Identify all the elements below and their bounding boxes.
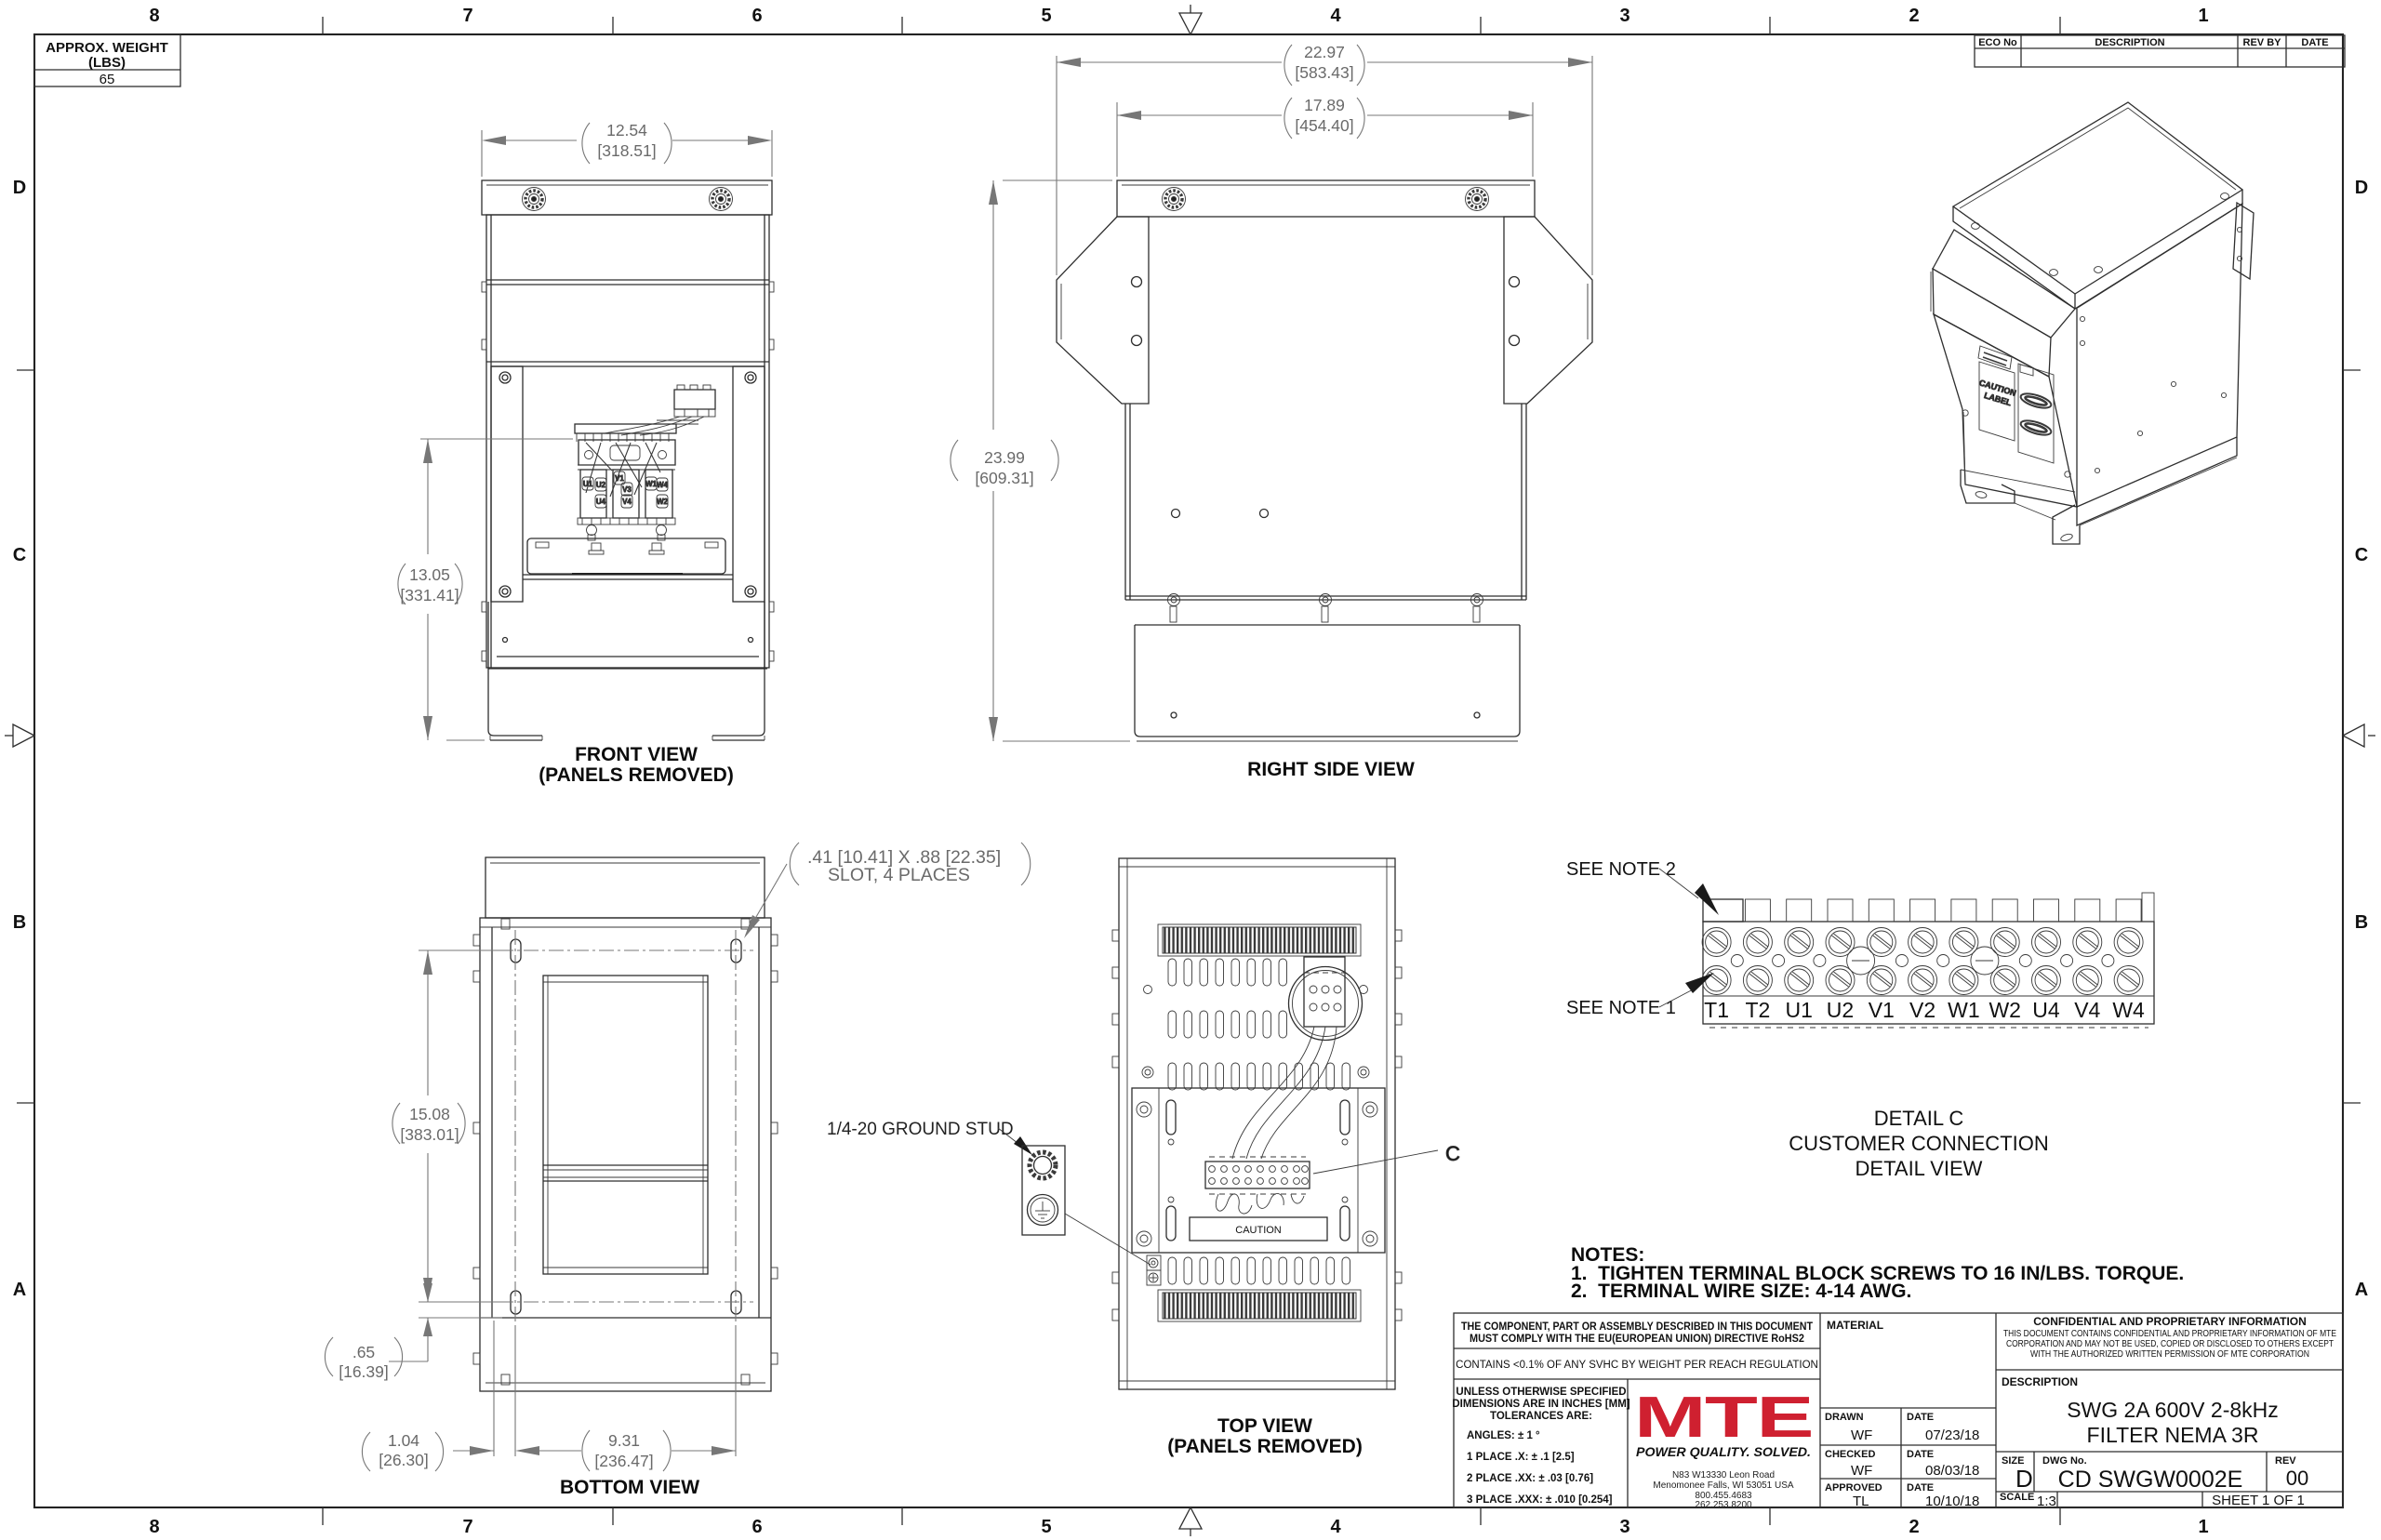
- svg-text:D: D: [2015, 1465, 2033, 1493]
- svg-text:A: A: [2355, 1280, 2368, 1300]
- svg-text:1/4-20 GROUND STUD: 1/4-20 GROUND STUD: [827, 1120, 1014, 1139]
- svg-text:DIMENSIONS ARE IN INCHES [MM]: DIMENSIONS ARE IN INCHES [MM]: [1452, 1399, 1629, 1410]
- svg-text:C: C: [2355, 545, 2368, 565]
- svg-text:2: 2: [1909, 1517, 1919, 1537]
- svg-text:TL: TL: [1853, 1494, 1869, 1509]
- svg-text:[236.47]: [236.47]: [594, 1452, 653, 1470]
- svg-text:CONFIDENTIAL AND PROPRIETARY I: CONFIDENTIAL AND PROPRIETARY INFORMATION: [2033, 1315, 2307, 1328]
- svg-text:(LBS): (LBS): [88, 55, 126, 71]
- svg-text:13.05: 13.05: [409, 565, 450, 584]
- svg-text:SLOT, 4 PLACES: SLOT, 4 PLACES: [828, 865, 970, 885]
- svg-text:B: B: [2355, 912, 2368, 933]
- svg-text:W1: W1: [1948, 998, 1980, 1022]
- svg-text:MUST COMPLY WITH THE EU(EUROPE: MUST COMPLY WITH THE EU(EUROPEAN UNION) …: [1470, 1332, 1804, 1345]
- svg-text:W2: W2: [657, 498, 669, 506]
- svg-text:8: 8: [149, 6, 159, 26]
- svg-text:WF: WF: [1851, 1463, 1872, 1479]
- svg-text:U1: U1: [583, 480, 593, 488]
- svg-text:2 PLACE .XX: ± .03 [0.76]: 2 PLACE .XX: ± .03 [0.76]: [1467, 1473, 1593, 1484]
- svg-text:CAUTION: CAUTION: [1235, 1225, 1282, 1236]
- svg-text:APPROX. WEIGHT: APPROX. WEIGHT: [46, 40, 168, 56]
- svg-text:65: 65: [100, 72, 115, 87]
- svg-text:W2: W2: [1989, 998, 2021, 1022]
- svg-text:T1: T1: [1704, 998, 1729, 1022]
- svg-text:V2: V2: [1909, 998, 1935, 1022]
- svg-text:6: 6: [752, 6, 762, 26]
- svg-text:22.97: 22.97: [1304, 43, 1345, 61]
- svg-text:08/03/18: 08/03/18: [1925, 1463, 1979, 1479]
- svg-text:SCALE: SCALE: [2000, 1492, 2034, 1503]
- svg-text:15.08: 15.08: [409, 1105, 450, 1123]
- svg-text:V1: V1: [1869, 998, 1895, 1022]
- svg-text:1: 1: [2198, 1517, 2208, 1537]
- svg-text:DWG No.: DWG No.: [2042, 1455, 2087, 1467]
- svg-text:MTE: MTE: [1634, 1386, 1813, 1450]
- svg-text:00: 00: [2286, 1467, 2308, 1490]
- svg-text:10/10/18: 10/10/18: [1925, 1494, 1979, 1509]
- svg-text:DATE: DATE: [2301, 37, 2328, 48]
- svg-text:DATE: DATE: [1907, 1482, 1934, 1494]
- svg-text:3: 3: [1619, 6, 1629, 26]
- svg-text:N83 W13330 Leon Road: N83 W13330 Leon Road: [1672, 1470, 1775, 1480]
- svg-text:ANGLES: ± 1 °: ANGLES: ± 1 °: [1467, 1430, 1540, 1441]
- svg-text:D: D: [2355, 178, 2368, 198]
- svg-text:W4: W4: [657, 481, 669, 489]
- svg-text:CONTAINS <0.1% OF ANY SVHC BY: CONTAINS <0.1% OF ANY SVHC BY WEIGHT PER…: [1456, 1360, 1818, 1371]
- svg-text:THE COMPONENT, PART OR ASSEMBL: THE COMPONENT, PART OR ASSEMBLY DESCRIBE…: [1461, 1320, 1814, 1333]
- svg-text:T2: T2: [1745, 998, 1770, 1022]
- svg-text:FRONT VIEW: FRONT VIEW: [575, 744, 698, 765]
- svg-text:TOP VIEW: TOP VIEW: [1217, 1415, 1312, 1437]
- svg-text:[454.40]: [454.40]: [1295, 116, 1353, 135]
- svg-text:REV BY: REV BY: [2243, 37, 2282, 48]
- svg-text:CORPORATION AND MAY NOT BE USE: CORPORATION AND MAY NOT BE USED, COPIED …: [2006, 1339, 2334, 1349]
- svg-text:[26.30]: [26.30]: [379, 1451, 429, 1469]
- svg-text:APPROVED: APPROVED: [1825, 1482, 1882, 1494]
- svg-text:U1: U1: [1785, 998, 1812, 1022]
- svg-text:U4: U4: [2032, 998, 2060, 1022]
- svg-text:(PANELS REMOVED): (PANELS REMOVED): [1167, 1436, 1363, 1457]
- svg-text:DATE: DATE: [1907, 1412, 1934, 1423]
- svg-text:4: 4: [1330, 1517, 1341, 1537]
- svg-text:2. TERMINAL WIRE SIZE: 4-14 A: 2. TERMINAL WIRE SIZE: 4-14 AWG.: [1571, 1281, 1911, 1302]
- svg-text:SEE NOTE 1: SEE NOTE 1: [1566, 998, 1676, 1018]
- svg-text:DATE: DATE: [1907, 1449, 1934, 1460]
- svg-text:SEE NOTE 2: SEE NOTE 2: [1566, 859, 1676, 880]
- svg-text:8: 8: [149, 1517, 159, 1537]
- svg-text:CD SWGW0002E: CD SWGW0002E: [2058, 1467, 2243, 1493]
- svg-text:THIS DOCUMENT CONTAINS CONFIDE: THIS DOCUMENT CONTAINS CONFIDENTIAL AND …: [2003, 1329, 2336, 1339]
- svg-text:[609.31]: [609.31]: [975, 469, 1033, 487]
- svg-text:SHEET 1 OF 1: SHEET 1 OF 1: [2212, 1493, 2305, 1508]
- svg-text:C: C: [1445, 1142, 1460, 1165]
- svg-text:UNLESS OTHERWISE SPECIFIED: UNLESS OTHERWISE SPECIFIED: [1456, 1387, 1626, 1398]
- svg-text:[16.39]: [16.39]: [339, 1362, 389, 1381]
- svg-text:TOLERANCES ARE:: TOLERANCES ARE:: [1490, 1411, 1592, 1422]
- svg-text:V3: V3: [622, 485, 632, 494]
- svg-text:V4: V4: [2074, 998, 2100, 1022]
- svg-text:POWER QUALITY. SOLVED.: POWER QUALITY. SOLVED.: [1636, 1445, 1811, 1459]
- svg-text:W4: W4: [2112, 998, 2145, 1022]
- svg-text:BOTTOM VIEW: BOTTOM VIEW: [560, 1477, 699, 1498]
- svg-text:3 PLACE .XXX: ± .010 [0.254]: 3 PLACE .XXX: ± .010 [0.254]: [1467, 1494, 1613, 1506]
- svg-text:CHECKED: CHECKED: [1825, 1449, 1875, 1460]
- svg-text:U2: U2: [596, 481, 606, 489]
- svg-text:DETAIL C: DETAIL C: [1874, 1107, 1964, 1130]
- svg-text:RIGHT SIDE VIEW: RIGHT SIDE VIEW: [1247, 759, 1415, 780]
- svg-text:CUSTOMER CONNECTION: CUSTOMER CONNECTION: [1789, 1132, 2049, 1155]
- svg-text:B: B: [13, 912, 26, 933]
- svg-text:5: 5: [1041, 1517, 1051, 1537]
- svg-text:D: D: [13, 178, 26, 198]
- svg-text:U2: U2: [1827, 998, 1854, 1022]
- svg-text:A: A: [13, 1280, 26, 1300]
- svg-text:W1: W1: [645, 480, 658, 488]
- svg-text:U4: U4: [596, 498, 606, 506]
- svg-text:.65: .65: [352, 1343, 375, 1361]
- svg-text:12.54: 12.54: [606, 121, 647, 139]
- svg-text:5: 5: [1041, 6, 1051, 26]
- svg-text:C: C: [13, 545, 26, 565]
- svg-text:REV: REV: [2275, 1455, 2296, 1467]
- svg-text:07/23/18: 07/23/18: [1925, 1427, 1979, 1443]
- svg-text:DRAWN: DRAWN: [1825, 1412, 1864, 1423]
- svg-text:1: 1: [2198, 6, 2208, 26]
- svg-text:WITH THE AUTHORIZED WRITTEN PE: WITH THE AUTHORIZED WRITTEN PERMISSION O…: [2030, 1349, 2309, 1360]
- svg-text:DETAIL VIEW: DETAIL VIEW: [1856, 1157, 1983, 1180]
- svg-text:23.99: 23.99: [984, 448, 1025, 467]
- svg-text:(PANELS REMOVED): (PANELS REMOVED): [539, 764, 734, 786]
- svg-text:SWG 2A 600V 2-8kHz: SWG 2A 600V 2-8kHz: [2067, 1398, 2279, 1422]
- svg-text:V4: V4: [622, 498, 632, 506]
- svg-text:3: 3: [1619, 1517, 1629, 1537]
- svg-text:262.253.8200: 262.253.8200: [1695, 1500, 1752, 1510]
- svg-text:1.04: 1.04: [388, 1431, 419, 1450]
- svg-text:MATERIAL: MATERIAL: [1827, 1319, 1883, 1332]
- svg-text:WF: WF: [1851, 1427, 1872, 1443]
- svg-text:FILTER NEMA 3R: FILTER NEMA 3R: [2087, 1423, 2259, 1447]
- svg-text:9.31: 9.31: [608, 1431, 640, 1450]
- svg-text:1:3: 1:3: [2037, 1494, 2056, 1509]
- svg-text:6: 6: [752, 1517, 762, 1537]
- svg-text:17.89: 17.89: [1304, 96, 1345, 114]
- svg-text:7: 7: [462, 1517, 472, 1537]
- svg-text:V1: V1: [615, 474, 624, 483]
- svg-text:2: 2: [1909, 6, 1919, 26]
- svg-text:[383.01]: [383.01]: [400, 1125, 459, 1144]
- svg-text:ECO No: ECO No: [1978, 37, 2017, 48]
- svg-text:[331.41]: [331.41]: [400, 586, 459, 604]
- svg-text:1 PLACE .X: ± .1 [2.5]: 1 PLACE .X: ± .1 [2.5]: [1467, 1452, 1575, 1463]
- svg-text:[318.51]: [318.51]: [597, 141, 656, 160]
- svg-text:[583.43]: [583.43]: [1295, 63, 1353, 82]
- svg-text:Menomonee Falls, WI 53051 USA: Menomonee Falls, WI 53051 USA: [1653, 1480, 1794, 1491]
- svg-text:7: 7: [462, 6, 472, 26]
- svg-text:DESCRIPTION: DESCRIPTION: [2002, 1375, 2078, 1388]
- svg-text:4: 4: [1330, 6, 1341, 26]
- svg-text:DESCRIPTION: DESCRIPTION: [2095, 37, 2164, 48]
